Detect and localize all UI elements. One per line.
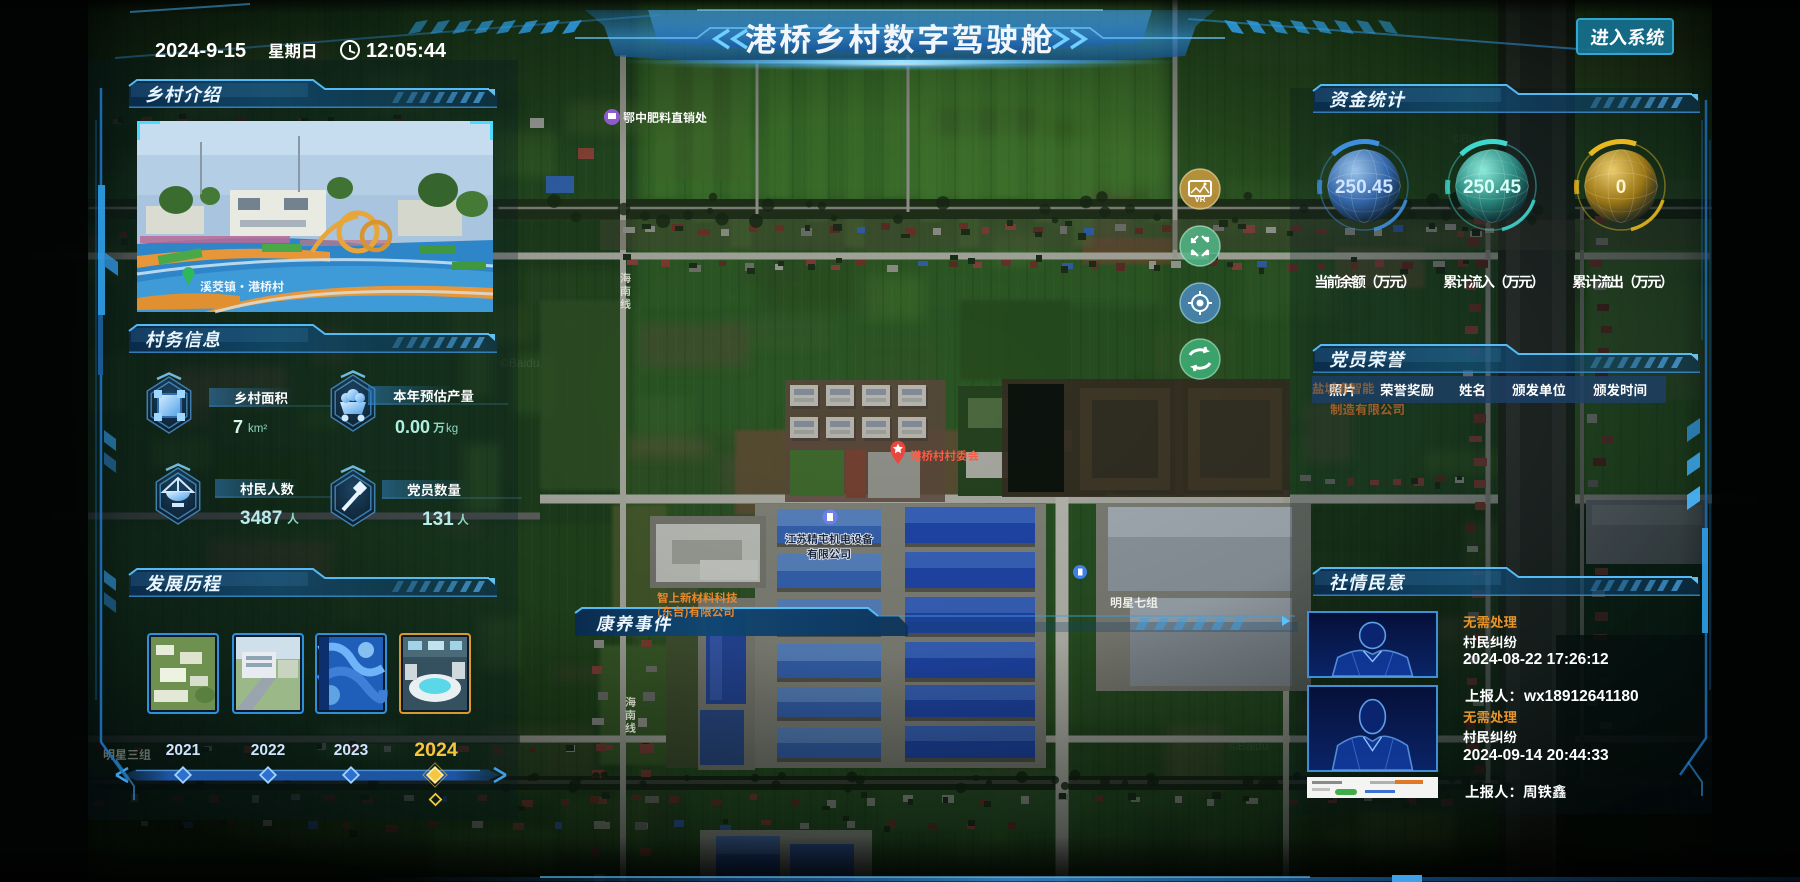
- svg-text:0: 0: [1616, 177, 1627, 198]
- svg-text:2024-09-14 20:44:33: 2024-09-14 20:44:33: [1463, 747, 1609, 764]
- svg-text:2022: 2022: [251, 742, 285, 759]
- svg-text:0.00: 0.00: [395, 417, 430, 437]
- svg-text:2021: 2021: [166, 742, 201, 759]
- svg-text:250.45: 250.45: [1335, 177, 1394, 198]
- svg-text:2024-08-22 17:26:12: 2024-08-22 17:26:12: [1463, 651, 1609, 668]
- svg-text:131: 131: [422, 509, 454, 530]
- svg-text:250.45: 250.45: [1463, 177, 1522, 198]
- svg-text:12:05:44: 12:05:44: [366, 40, 447, 62]
- svg-text:2023: 2023: [334, 742, 369, 759]
- svg-text:2024: 2024: [414, 739, 458, 761]
- svg-text:wx18912641180: wx18912641180: [1523, 688, 1639, 705]
- svg-text:7: 7: [233, 417, 243, 437]
- svg-text:kg: kg: [446, 423, 458, 435]
- svg-text:3487: 3487: [240, 508, 282, 529]
- svg-text:2024-9-15: 2024-9-15: [155, 40, 246, 62]
- svg-text:km²: km²: [248, 423, 267, 435]
- svg-text:VR: VR: [1194, 195, 1205, 204]
